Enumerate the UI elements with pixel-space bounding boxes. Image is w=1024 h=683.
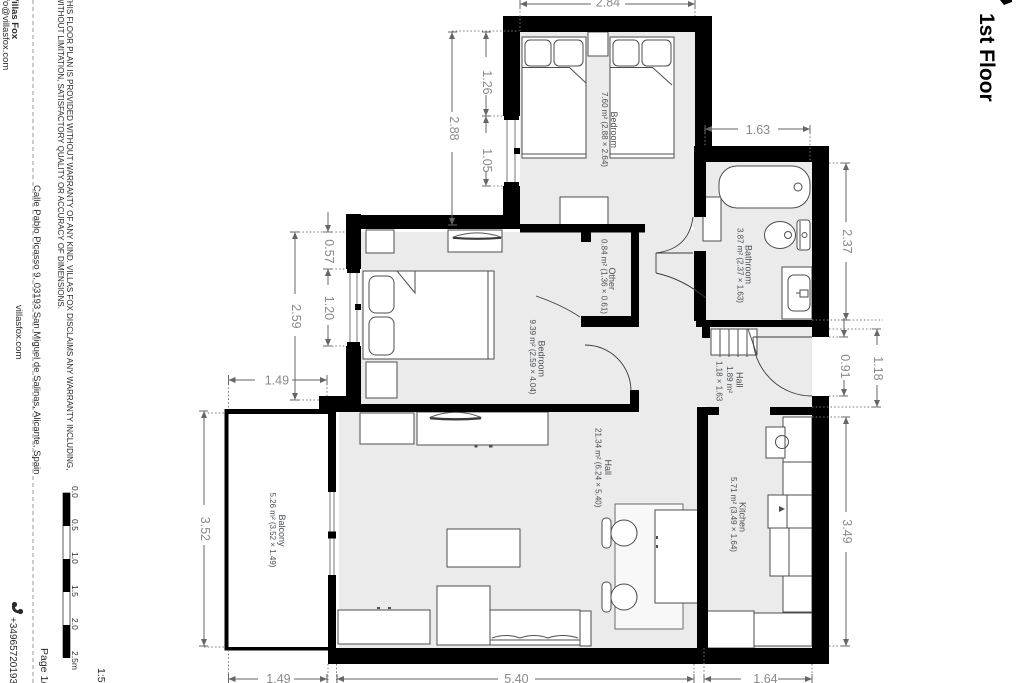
svg-text:1.64: 1.64 (753, 672, 777, 683)
svg-text:1.18: 1.18 (871, 356, 885, 380)
svg-text:Page 1/1: Page 1/1 (38, 648, 50, 683)
svg-text:1.63: 1.63 (746, 123, 770, 137)
svg-text:1:50: 1:50 (95, 668, 107, 683)
svg-text:0.84 m² (1.36 × 0.61): 0.84 m² (1.36 × 0.61) (600, 239, 609, 314)
svg-text:2.37: 2.37 (840, 229, 854, 253)
svg-text:0.57: 0.57 (322, 239, 336, 263)
svg-text:Kitchen: Kitchen (738, 502, 748, 532)
svg-text:Bedroom: Bedroom (609, 112, 619, 149)
svg-text:1st Floor: 1st Floor (975, 13, 998, 102)
svg-text:Hall: Hall (603, 460, 613, 476)
svg-text:villasfox.com: villasfox.com (13, 305, 24, 359)
svg-text:Bedroom: Bedroom (537, 341, 547, 378)
svg-text:2.59: 2.59 (289, 304, 303, 328)
svg-text:info@villasfox.com: info@villasfox.com (0, 0, 11, 70)
svg-text:3.52: 3.52 (198, 517, 212, 541)
svg-text:1.89 m²: 1.89 m² (725, 366, 734, 393)
svg-text:1.05: 1.05 (480, 148, 494, 172)
svg-text:3.87 m² (2.37 × 1.63): 3.87 m² (2.37 × 1.63) (736, 228, 745, 303)
svg-text:2.88: 2.88 (447, 116, 461, 140)
svg-text:0.5: 0.5 (70, 519, 80, 531)
svg-text:5.40: 5.40 (504, 672, 528, 683)
svg-text:9.39 m² (2.59 × 4.04): 9.39 m² (2.59 × 4.04) (528, 320, 537, 395)
svg-text:Balcony: Balcony (277, 515, 287, 548)
svg-text:1.49: 1.49 (266, 672, 290, 683)
svg-text:Hall: Hall (735, 372, 745, 388)
svg-text:THIS FLOOR PLAN IS PROVIDED WI: THIS FLOOR PLAN IS PROVIDED WITHOUT WARR… (65, 0, 74, 470)
svg-text:1.49: 1.49 (265, 373, 289, 387)
svg-text:WITHOUT LIMITATION, SATISFACTO: WITHOUT LIMITATION, SATISFACTORY QUALITY… (56, 0, 65, 309)
svg-text:3.49: 3.49 (840, 519, 854, 543)
svg-text:7.60 m² (2.88 × 2.64): 7.60 m² (2.88 × 2.64) (600, 92, 609, 167)
svg-text:1.18 × 1.63: 1.18 × 1.63 (715, 361, 724, 402)
svg-text:1.26: 1.26 (480, 70, 494, 94)
svg-text:5.26 m² (3.52 × 1.49): 5.26 m² (3.52 × 1.49) (268, 493, 277, 568)
svg-text:1.20: 1.20 (322, 296, 336, 320)
svg-text:0.0: 0.0 (70, 486, 80, 498)
svg-text:0.91: 0.91 (838, 354, 852, 378)
svg-text:2.5m: 2.5m (70, 651, 80, 670)
svg-text:1.0: 1.0 (70, 552, 80, 564)
svg-text:2.0: 2.0 (70, 618, 80, 630)
svg-text:5.71 m² (3.49 × 1.64): 5.71 m² (3.49 × 1.64) (729, 477, 738, 552)
svg-text:21.34 m² (6.24 × 5.40): 21.34 m² (6.24 × 5.40) (594, 428, 603, 508)
svg-text:2.84: 2.84 (596, 0, 620, 10)
svg-text:+34965720193: +34965720193 (7, 617, 18, 683)
svg-text:Calle Pablo Picasso 9, 03193 S: Calle Pablo Picasso 9, 03193 San Miguel … (31, 185, 42, 474)
svg-text:1.5: 1.5 (70, 585, 80, 597)
